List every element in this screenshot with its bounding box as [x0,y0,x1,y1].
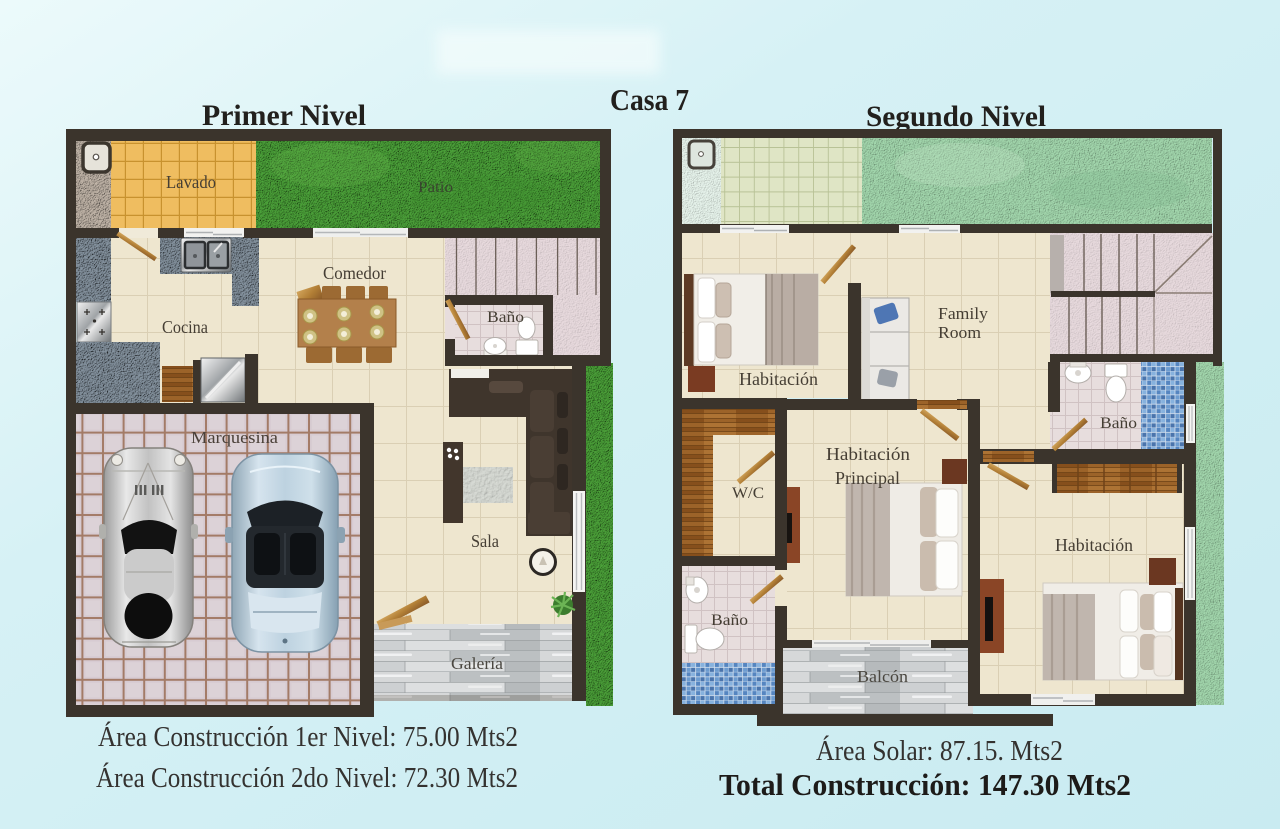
svg-text:Casa 7: Casa 7 [610,82,689,117]
svg-text:Segundo Nivel: Segundo Nivel [866,100,1046,133]
svg-text:Baño: Baño [711,612,748,629]
svg-text:Marquesina: Marquesina [191,428,278,447]
svg-text:Área Solar: 87.15. Mts2: Área Solar: 87.15. Mts2 [816,736,1063,767]
svg-text:Comedor: Comedor [323,263,386,283]
svg-text:Baño: Baño [487,309,524,326]
svg-text:Habitación: Habitación [826,444,910,464]
svg-text:W/C: W/C [732,485,764,502]
svg-text:Habitación: Habitación [1055,535,1133,555]
svg-text:Área Construcción 2do Nivel: 7: Área Construcción 2do Nivel: 72.30 Mts2 [96,763,518,794]
svg-text:Galería: Galería [451,654,503,673]
svg-text:Principal: Principal [835,468,900,488]
svg-text:Cocina: Cocina [162,317,208,337]
svg-text:Balcón: Balcón [857,667,909,686]
svg-text:Habitación: Habitación [739,369,818,389]
svg-text:Family: Family [938,304,989,323]
svg-text:Primer Nivel: Primer Nivel [202,99,366,132]
svg-text:Total Construcción: 147.30 Mts: Total Construcción: 147.30 Mts2 [719,767,1131,802]
svg-text:Área Construcción 1er Nivel: 7: Área Construcción 1er Nivel: 75.00 Mts2 [98,722,518,753]
svg-text:Baño: Baño [1100,415,1137,432]
svg-text:Room: Room [938,323,981,342]
svg-text:Patio: Patio [418,179,453,196]
svg-text:Lavado: Lavado [166,172,216,192]
svg-text:Sala: Sala [471,531,499,551]
